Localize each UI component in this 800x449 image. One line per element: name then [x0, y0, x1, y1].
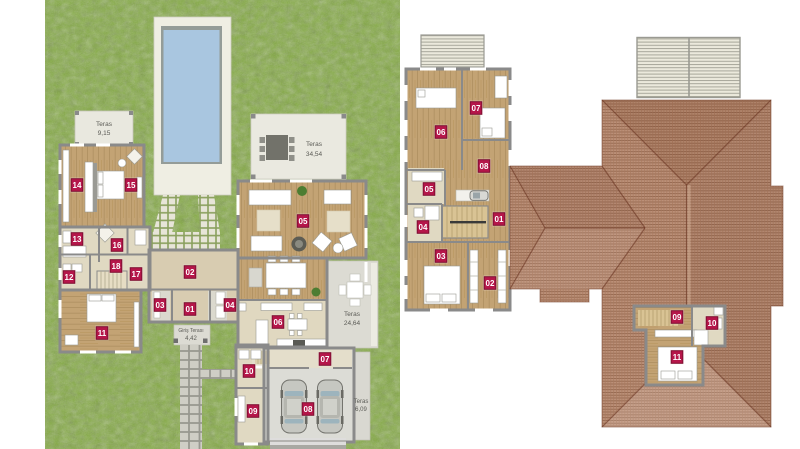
- svg-text:11: 11: [673, 353, 682, 362]
- svg-text:04: 04: [419, 223, 428, 232]
- svg-text:01: 01: [495, 215, 504, 224]
- svg-text:05: 05: [425, 185, 434, 194]
- svg-text:14: 14: [73, 181, 82, 190]
- svg-text:02: 02: [486, 279, 495, 288]
- svg-text:15: 15: [127, 181, 136, 190]
- svg-text:12: 12: [65, 273, 74, 282]
- svg-text:09: 09: [673, 313, 682, 322]
- svg-text:24,64: 24,64: [344, 320, 361, 327]
- svg-text:02: 02: [186, 268, 195, 277]
- svg-text:Giriş Terası: Giriş Terası: [178, 328, 203, 334]
- svg-text:09: 09: [249, 407, 258, 416]
- svg-text:18: 18: [112, 262, 121, 271]
- svg-text:9,15: 9,15: [98, 130, 111, 137]
- svg-text:05: 05: [299, 217, 308, 226]
- svg-text:04: 04: [226, 301, 235, 310]
- svg-text:10: 10: [708, 319, 717, 328]
- svg-text:10: 10: [245, 367, 254, 376]
- svg-text:11: 11: [98, 329, 107, 338]
- svg-text:34,54: 34,54: [306, 151, 323, 158]
- svg-text:06: 06: [437, 128, 446, 137]
- svg-text:6,09: 6,09: [355, 407, 367, 413]
- svg-text:4,42: 4,42: [185, 336, 197, 342]
- svg-text:08: 08: [304, 405, 313, 414]
- svg-text:Teras: Teras: [306, 141, 323, 148]
- svg-text:17: 17: [132, 270, 141, 279]
- svg-text:07: 07: [472, 104, 481, 113]
- svg-text:06: 06: [274, 318, 283, 327]
- svg-text:08: 08: [480, 162, 489, 171]
- svg-text:07: 07: [321, 355, 330, 364]
- svg-text:03: 03: [156, 301, 165, 310]
- svg-text:Teras: Teras: [96, 121, 113, 128]
- svg-text:16: 16: [113, 241, 122, 250]
- svg-text:01: 01: [186, 305, 195, 314]
- svg-text:03: 03: [437, 252, 446, 261]
- svg-text:Teras: Teras: [344, 311, 361, 318]
- svg-text:Teras: Teras: [354, 399, 369, 405]
- svg-text:13: 13: [73, 235, 82, 244]
